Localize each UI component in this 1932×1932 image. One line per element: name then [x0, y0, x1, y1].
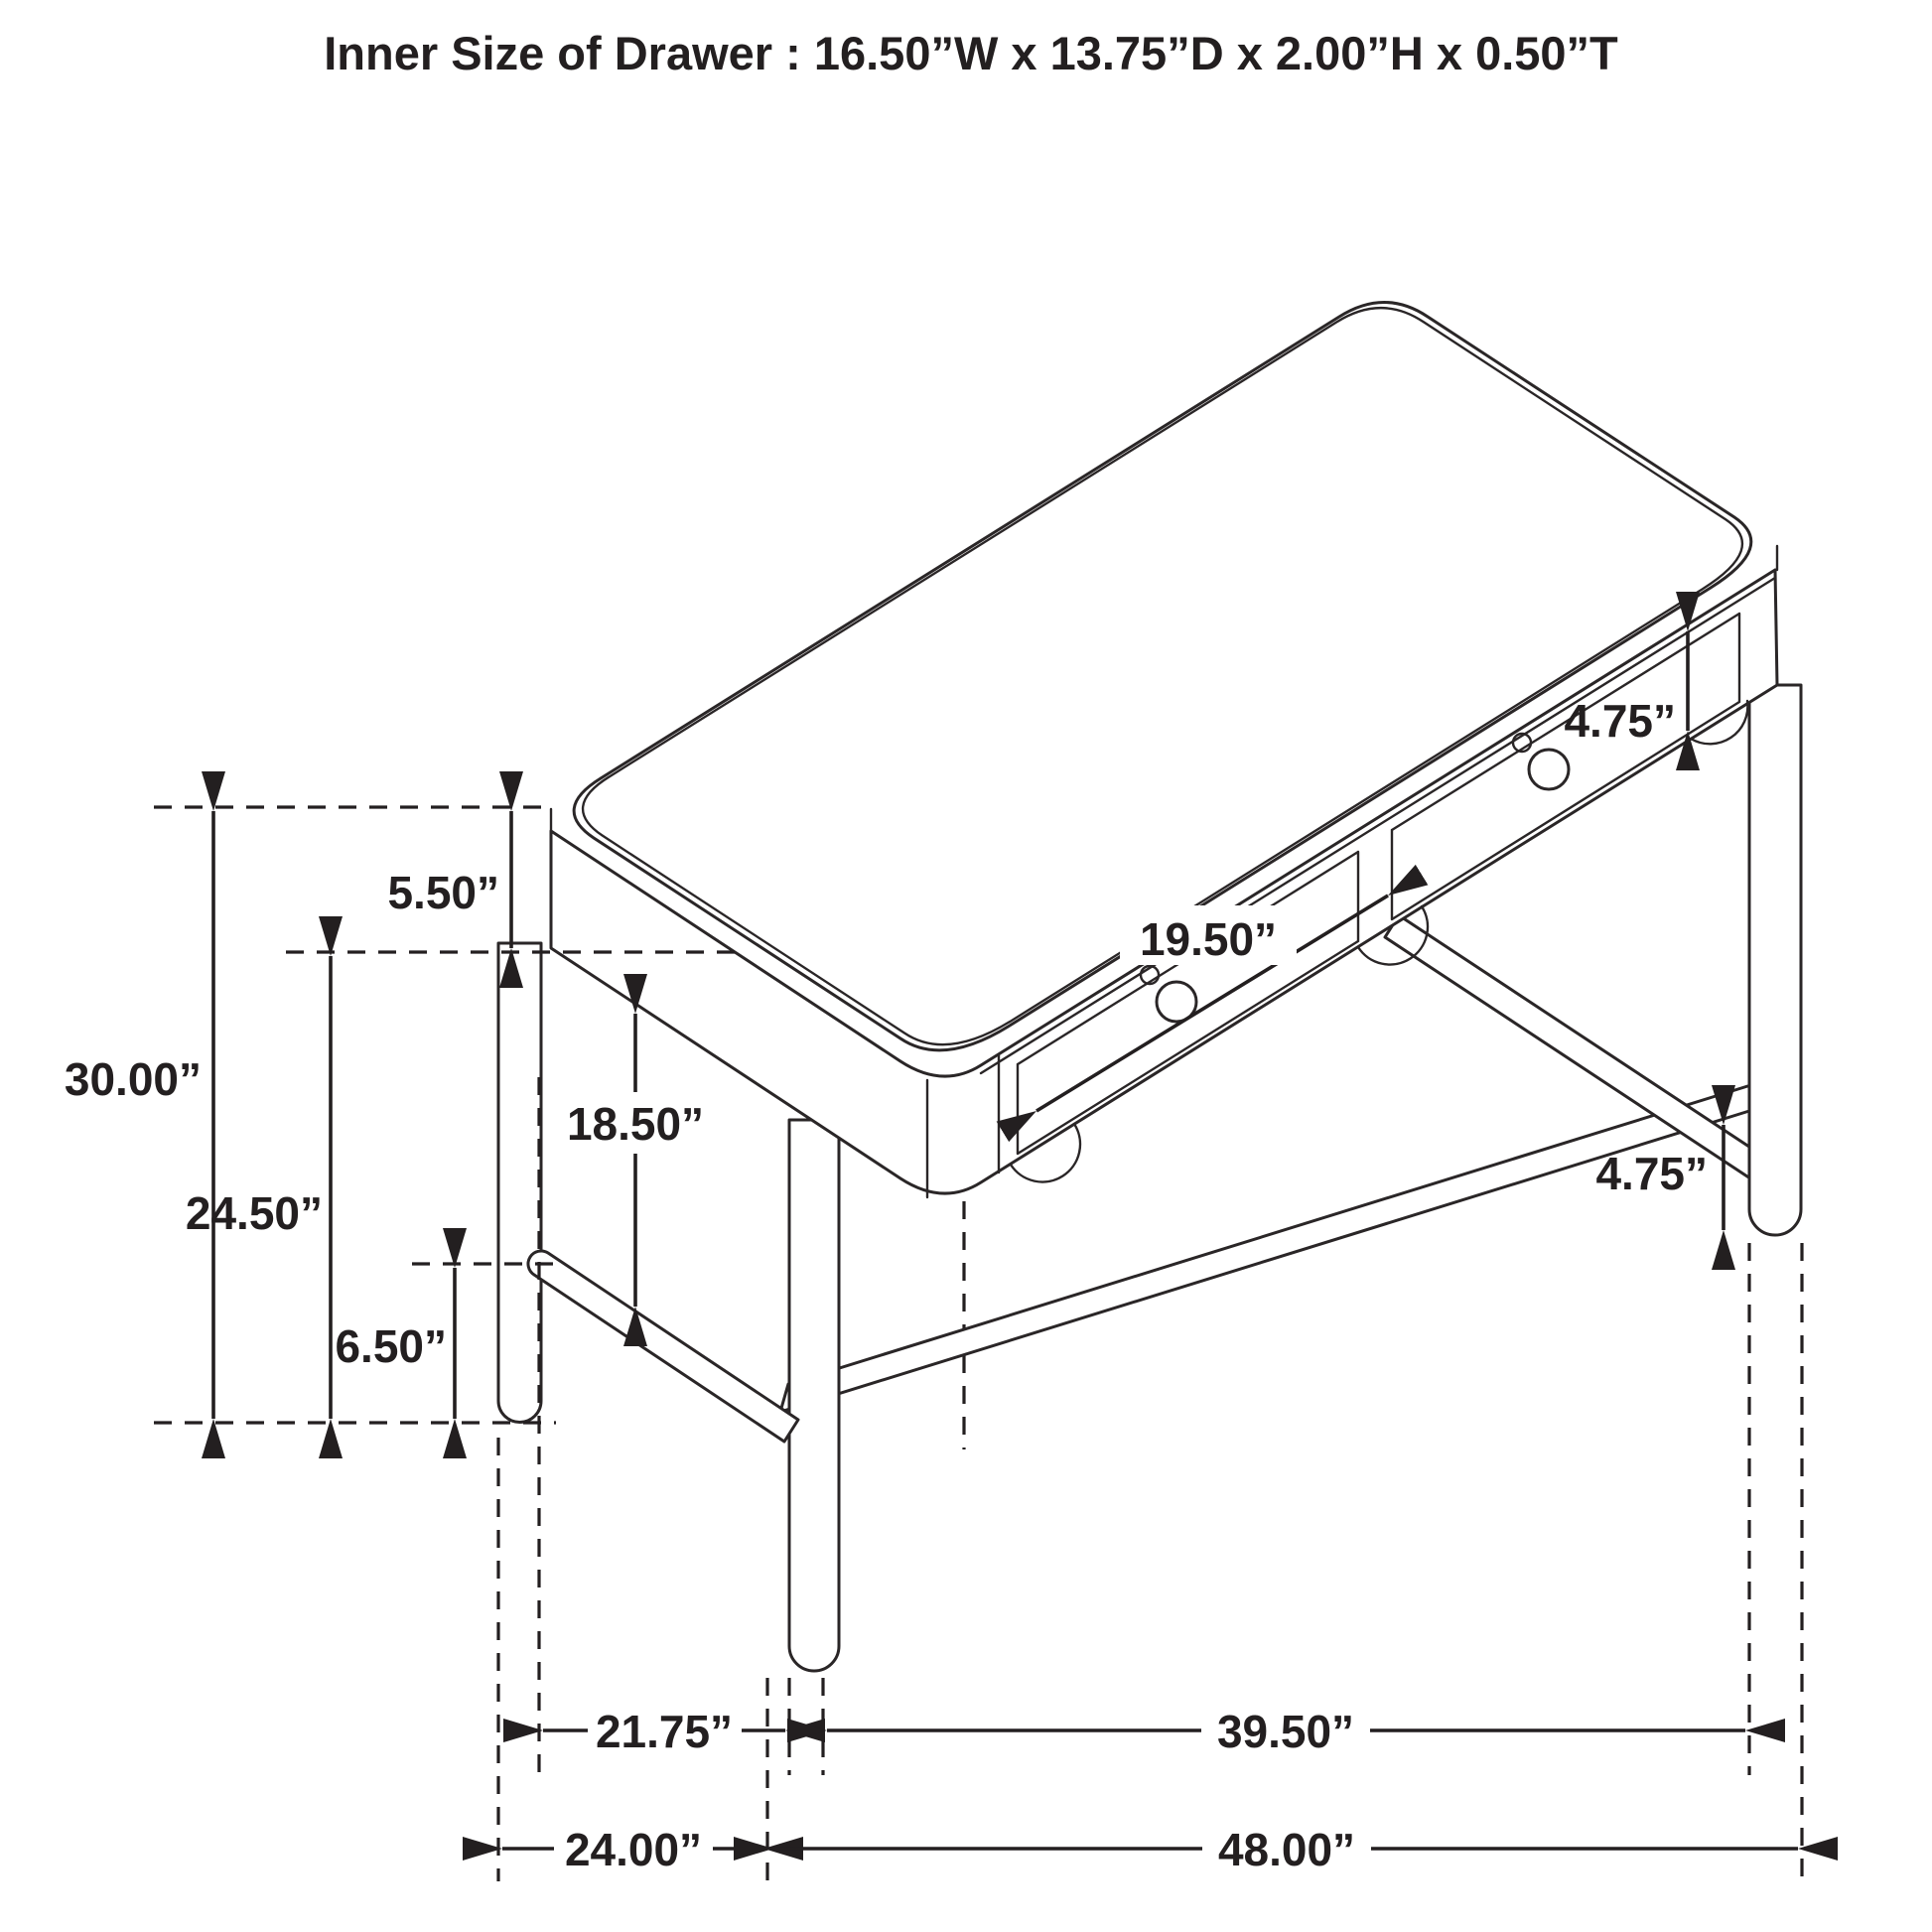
dim-apron-stretcher-label: 18.50”: [567, 1098, 704, 1150]
dim-stretcher-floor: 6.50”: [335, 1268, 455, 1419]
left-side-stretcher: [528, 1251, 798, 1442]
front-leg: [789, 1120, 839, 1671]
desk-drawing: [498, 303, 1801, 1672]
dimension-diagram-page: 30.00” 24.50” 5.50” 6.50” 18.50” 19.50”: [0, 0, 1932, 1932]
desk-dimension-drawing: 30.00” 24.50” 5.50” 6.50” 18.50” 19.50”: [0, 0, 1932, 1932]
dim-overall-width-label: 48.00”: [1218, 1824, 1355, 1875]
dim-inner-depth-label: 21.75”: [596, 1706, 733, 1757]
dim-top-apron: 5.50”: [387, 811, 511, 948]
dim-inner-width-label: 39.50”: [1217, 1706, 1354, 1757]
dim-floor-to-apron-label: 24.50”: [186, 1187, 323, 1239]
dim-overall-height-label: 30.00”: [65, 1053, 202, 1105]
dim-drawer-width-label: 19.50”: [1140, 913, 1277, 965]
dim-overall-height: 30.00”: [65, 811, 213, 1419]
dim-overall-depth-label: 24.00”: [565, 1824, 702, 1875]
dim-leg-below-stretcher-label: 4.75”: [1595, 1148, 1708, 1199]
left-rear-leg: [498, 943, 541, 1423]
dim-inner-depth: 21.75”: [543, 1700, 785, 1759]
dim-floor-to-apron: 24.50”: [186, 956, 331, 1419]
dim-overall-depth: 24.00”: [502, 1818, 763, 1877]
dim-top-apron-label: 5.50”: [387, 867, 499, 918]
right-rear-leg: [1749, 685, 1801, 1235]
drawing-title: Inner Size of Drawer : 16.50”W x 13.75”D…: [324, 27, 1618, 79]
dim-apron-stretcher: 18.50”: [544, 1014, 727, 1307]
dim-drawer-height-label: 4.75”: [1564, 695, 1676, 747]
dim-inner-width: 39.50”: [827, 1700, 1745, 1759]
dim-overall-width: 48.00”: [773, 1818, 1798, 1877]
dim-stretcher-floor-label: 6.50”: [335, 1320, 447, 1372]
